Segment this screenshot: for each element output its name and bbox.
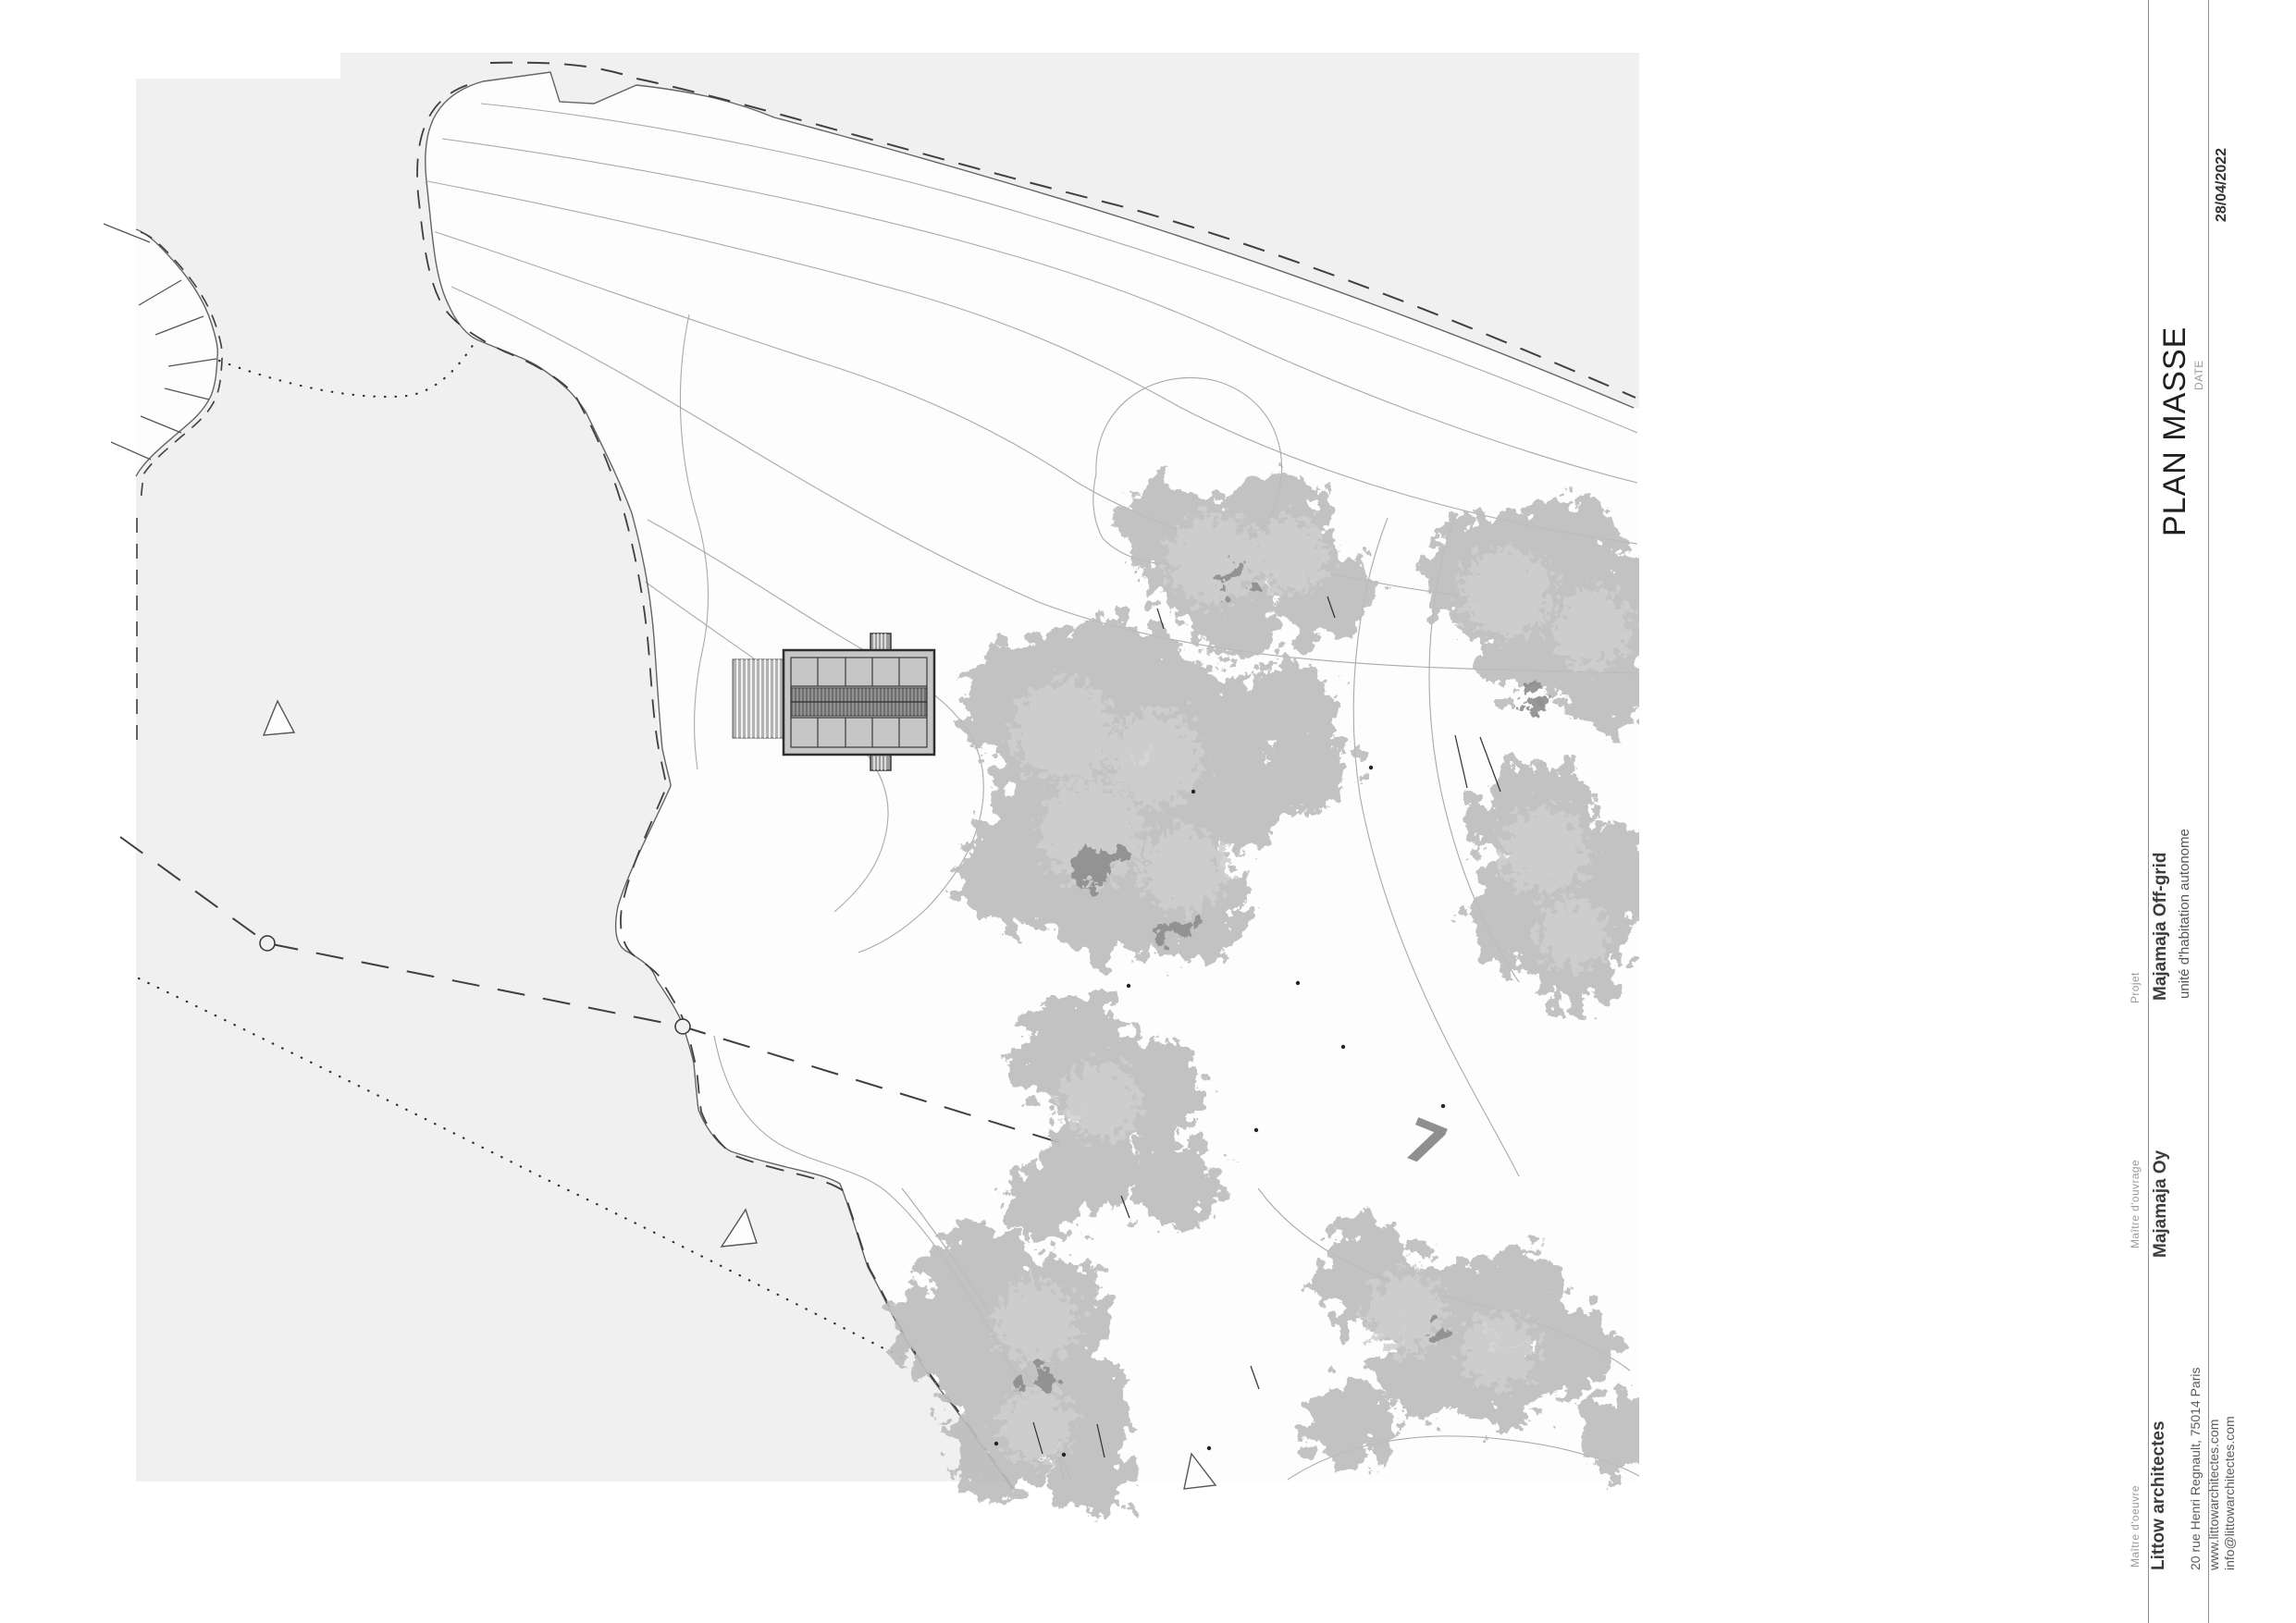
date-value: 28/04/2022 xyxy=(2215,148,2229,222)
site-plan-drawing: 7 xyxy=(0,0,2296,1623)
architect-name: Littow architectes xyxy=(2150,1420,2167,1570)
page-title: PLAN MASSE xyxy=(2159,326,2191,536)
project-name: Majamaja Off-grid xyxy=(2152,853,2169,1001)
architect-address: 20 rue Henri Regnault, 75014 Paris xyxy=(2189,1368,2202,1570)
building-roof-band xyxy=(791,688,927,716)
architect-website: www.littowarchitectes.com xyxy=(2207,1420,2220,1570)
building-deck xyxy=(733,659,784,738)
plan-sheet: 7 PLAN MASSE DATE 28/04/2022 Projet Maja… xyxy=(0,0,2296,1623)
client-name: Majamaja Oy xyxy=(2152,1150,2169,1258)
project-label: Projet xyxy=(2129,972,2141,1003)
architect-label: Maître d'oeuvre xyxy=(2129,1485,2141,1568)
building-stair-bottom xyxy=(870,754,891,770)
title-block-divider-left xyxy=(2148,0,2149,1623)
project-subtitle: unité d'habitation autonome xyxy=(2178,829,2191,999)
title-block-divider-right xyxy=(2208,0,2209,1623)
client-label: Maître d'ouvrage xyxy=(2129,1160,2141,1248)
architect-email: info@littowarchitectes.com xyxy=(2223,1416,2236,1570)
building-stair-top xyxy=(870,633,891,651)
date-label: DATE xyxy=(2193,360,2204,390)
